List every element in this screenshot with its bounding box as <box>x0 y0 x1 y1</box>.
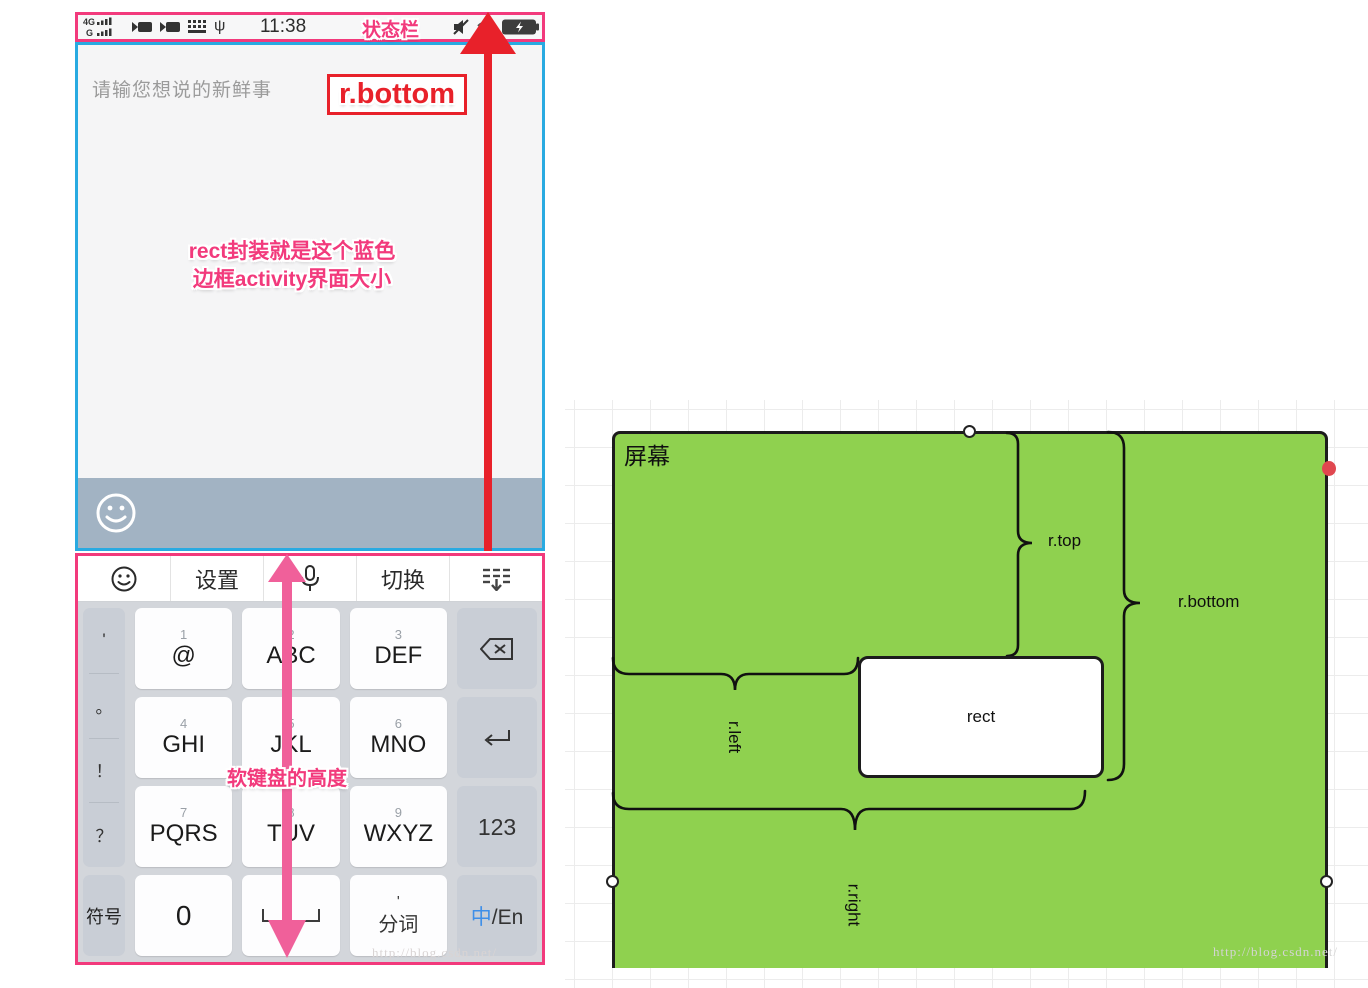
word-segment-key[interactable]: ' 分词 <box>350 875 447 956</box>
settings-button[interactable]: 设置 <box>170 556 263 601</box>
punctuation-column: ' 。 ！ ？ <box>83 608 125 867</box>
punct-key[interactable]: ' <box>83 608 125 673</box>
handle-red-dot <box>1322 461 1336 476</box>
key-3-def[interactable]: 3DEF <box>350 608 447 689</box>
video-camera-icon <box>160 20 182 34</box>
switch-button[interactable]: 切换 <box>356 556 449 601</box>
emoji-button[interactable] <box>78 556 170 601</box>
status-bar-annotation: 状态栏 <box>362 15 419 42</box>
handle-top <box>963 425 976 438</box>
rect-label: rect <box>967 707 995 727</box>
collapse-keyboard-button[interactable] <box>449 556 542 601</box>
key-7-pqrs[interactable]: 7PQRS <box>135 786 232 867</box>
backspace-icon <box>480 638 514 660</box>
keyboard-toolbar: 设置 切换 <box>78 556 542 602</box>
key-1-at[interactable]: 1@ <box>135 608 232 689</box>
soft-keyboard: 设置 切换 ' 。 ！ ？ <box>75 553 545 965</box>
r-bottom-arrow-head <box>460 12 516 54</box>
r-bottom-annotation: r.bottom <box>327 74 467 115</box>
r-left-label: r.left <box>699 702 769 772</box>
numbers-key[interactable]: 123 <box>457 786 537 867</box>
video-camera-icon <box>132 20 154 34</box>
svg-text:G: G <box>86 28 93 38</box>
language-toggle-key[interactable]: 中/En <box>457 875 537 956</box>
handle-left <box>606 875 619 888</box>
punct-key[interactable]: 。 <box>83 673 125 738</box>
watermark: http://blog.csdn.net/ <box>1213 944 1338 960</box>
r-bottom-arrow-shaft <box>484 40 492 551</box>
smiley-icon[interactable] <box>94 491 138 535</box>
enter-icon <box>482 727 512 749</box>
svg-text:4G: 4G <box>83 17 95 27</box>
r-right-label: r.right <box>818 870 888 940</box>
rect-shape: rect <box>858 656 1104 778</box>
usb-icon: ψ <box>214 18 225 36</box>
enter-key[interactable] <box>457 697 537 778</box>
punct-key[interactable]: ？ <box>83 802 125 867</box>
handle-right <box>1320 875 1333 888</box>
composer-placeholder[interactable]: 请输您想说的新鲜事 <box>92 75 272 102</box>
symbols-key[interactable]: 符号 <box>83 875 125 956</box>
screen-label: 屏幕 <box>624 437 670 471</box>
key-9-wxyz[interactable]: 9WXYZ <box>350 786 447 867</box>
rect-note-annotation: rect封装就是这个蓝色 边框activity界面大小 <box>172 238 412 294</box>
keyboard-height-arrow-up <box>268 554 306 582</box>
composer-toolbar <box>78 478 542 548</box>
keyboard-height-arrow-down <box>268 920 306 958</box>
punct-key[interactable]: ！ <box>83 738 125 803</box>
watermark: http://blog.csdn.net/ <box>372 945 497 961</box>
key-0[interactable]: 0 <box>135 875 232 956</box>
activity-area: 请输您想说的新鲜事 <box>75 42 545 551</box>
r-top-label: r.top <box>1048 531 1081 551</box>
keyboard-height-annotation: 软键盘的高度 <box>197 762 377 791</box>
keyboard-icon <box>188 20 208 34</box>
signal-4g-icon: 4G G <box>83 16 123 38</box>
keyboard-height-arrow-shaft <box>282 574 292 920</box>
backspace-key[interactable] <box>457 608 537 689</box>
status-time: 11:38 <box>260 16 306 38</box>
r-bottom-label: r.bottom <box>1178 592 1239 612</box>
